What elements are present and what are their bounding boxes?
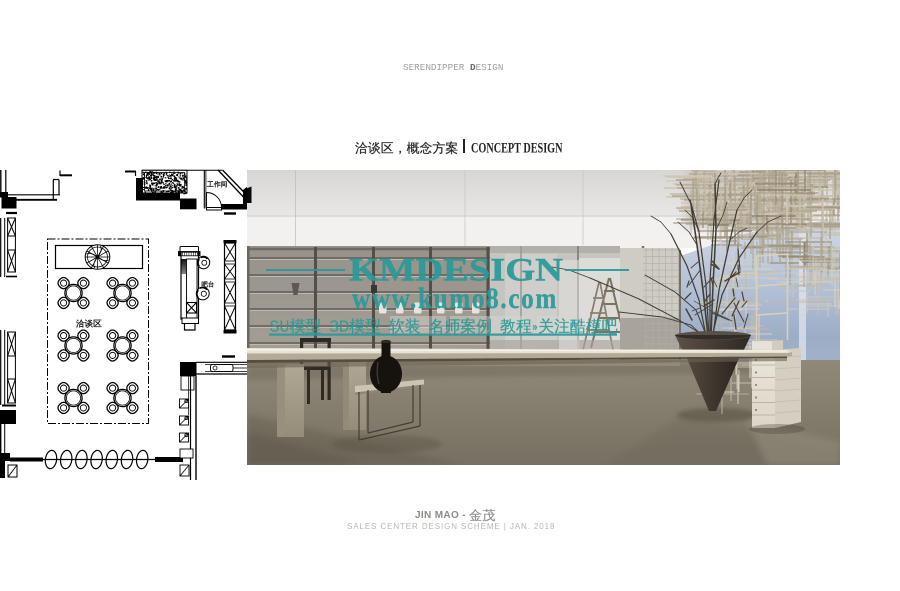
svg-text:CONCEPT DESIGN: CONCEPT DESIGN: [471, 140, 563, 155]
svg-text:www.kumo8.com: www.kumo8.com: [352, 282, 558, 315]
